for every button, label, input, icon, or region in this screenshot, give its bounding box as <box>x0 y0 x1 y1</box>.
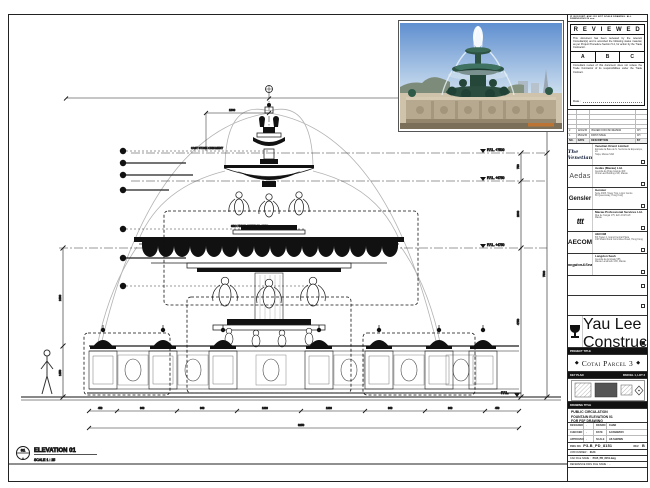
stamp-option-c[interactable]: C <box>620 52 644 62</box>
cad-file-label: CAD FILE NAME : <box>570 457 591 460</box>
stamp-date-label: Date : <box>573 99 581 103</box>
reference-label: REFERENCE DWG FILE NAME : <box>570 463 608 466</box>
rev-no: 2 <box>568 129 577 133</box>
scale-figure <box>41 350 53 394</box>
key-plan-label: KEY PLAN <box>570 374 584 377</box>
drawn-value: CHAD <box>607 423 647 429</box>
review-checkbox[interactable] <box>641 270 646 275</box>
yau-lee-logo <box>568 324 582 340</box>
rev-header-no: NO. <box>568 139 577 143</box>
dim-2000: 2000 <box>516 210 520 217</box>
key-plan-parcel: PARCEL 1, LOT 3 <box>623 374 645 377</box>
scale-label: SCALE <box>594 436 607 442</box>
stamp-body-1: This document has been reviewed by the r… <box>571 35 644 51</box>
reference-value: - <box>610 463 611 466</box>
rev-header-date: DATE <box>577 139 590 143</box>
dim-left-lower: 1450 <box>58 369 62 376</box>
title-block-spacer <box>568 468 647 481</box>
consultant-address: China Law Building 21/F, Macau <box>595 173 645 176</box>
dim-b4: 1030 <box>326 406 332 410</box>
rev-header-desc: DESCRIPTION <box>590 139 636 143</box>
sheet-top-note: IF IN DOUBT, ASK. DO NOT SCALE DRAWING. … <box>568 15 647 22</box>
project-title-header: PROJECT TITLE <box>568 348 647 355</box>
rev-desc: FIRST ISSUE <box>590 134 636 138</box>
consultant-entry-mps: ttt Macau Professional Services Ltd. Rua… <box>568 210 647 232</box>
approved-value: - <box>584 436 594 442</box>
review-checkbox[interactable] <box>641 160 646 165</box>
project-name: Cotai Parcel 3 <box>582 359 634 368</box>
job-value: 3123 <box>590 451 596 454</box>
stamp-date-field[interactable] <box>583 98 642 103</box>
stamp-option-a[interactable]: A <box>571 52 596 62</box>
gensler-logo: Gensler <box>568 188 593 209</box>
fountain-photo-art <box>400 22 562 130</box>
dim-top: 1800 <box>229 108 236 112</box>
contractor-name: Yau Lee Construction <box>583 316 647 348</box>
stamp-body-2: Consultant review of this document does … <box>571 63 644 76</box>
consultant-entry-aedas: Aedas Aedas (Macau) Ltd. Avenida da Prai… <box>568 166 647 188</box>
designed-label: DESIGNED <box>568 423 584 429</box>
statue-left <box>408 89 416 97</box>
level-markers <box>480 149 520 397</box>
pool-wall <box>87 325 521 393</box>
key-plan-art <box>571 380 645 401</box>
dim-b5: 960 <box>388 406 393 410</box>
rev-date: 05/01/15 <box>577 134 590 138</box>
grand-basin <box>134 237 404 272</box>
scale-value: AS SHOWN <box>607 436 647 442</box>
dim-b0: 450 <box>98 406 103 410</box>
statue-right <box>545 87 553 95</box>
stamp-status-options: A B C <box>571 51 644 63</box>
revision-header-row: NO. DATE DESCRIPTION BY <box>568 139 647 143</box>
rev-by: CH <box>636 129 647 133</box>
job-label: JOB NUMBER : <box>570 451 588 454</box>
aedas-logo: Aedas <box>568 166 593 187</box>
rev-label: REV. <box>633 445 639 448</box>
consultant-entry-aecom: AECOM AECOM 8/F Tower 2, Grand Central P… <box>568 232 647 254</box>
consultant-entry-venetian: The Venetian Venetian Orient Limited Est… <box>568 144 647 166</box>
review-checkbox[interactable] <box>641 226 646 231</box>
checked-label: CHECKED <box>568 430 584 436</box>
key-plan-header: KEY PLAN PARCEL 1, LOT 3 <box>568 372 647 379</box>
drawing-title-text: PUBLIC CIRCULATION FOUNTAIN ELEVATION 01… <box>568 409 647 423</box>
dim-b1: 960 <box>140 406 145 410</box>
designed-value: - <box>584 423 594 429</box>
date-value: 12/JAN/2015 <box>607 430 647 436</box>
drawing-info-table: DESIGNED - DRAWN CHAD CHECKED - DATE 12/… <box>568 423 647 443</box>
rev-by: CH <box>636 134 647 138</box>
review-checkbox-checked[interactable] <box>641 341 646 346</box>
consultant-address: Taipa, Macau SAR <box>595 154 645 157</box>
consultant-entry-gensler: Gensler Gensler Suite 4305, Tower Two, L… <box>568 188 647 210</box>
consultant-address: 89 Queensway, Hong Kong <box>595 195 645 198</box>
review-checkbox[interactable] <box>641 248 646 253</box>
review-stamp: R E V I E W E D This document has been r… <box>568 22 647 110</box>
rev-header-by: BY <box>636 139 647 143</box>
sheet-frame: F.F.L. +7500 F.F.L. +6750 F.F.L. +4750 F… <box>8 14 648 482</box>
venetian-logo: The Venetian <box>568 144 593 165</box>
review-checkbox[interactable] <box>641 284 646 289</box>
finial <box>253 103 285 164</box>
dwg-no-label: DWG NO. <box>570 445 581 448</box>
dim-7500: 7500 <box>542 270 546 277</box>
consultant-entry-blank <box>568 276 647 296</box>
project-name-row: ◆ Cotai Parcel 3 ◆ <box>568 355 647 372</box>
level-lines <box>21 153 561 400</box>
stamp-title: R E V I E W E D <box>571 25 644 35</box>
level-label-6750: F.F.L. +6750 <box>487 176 505 180</box>
date-label: DATE <box>594 430 607 436</box>
title-block: IF IN DOUBT, ASK. DO NOT SCALE DRAWING. … <box>567 15 647 481</box>
rev-desc: ISSUED FOR FSF REVIEW <box>590 129 636 133</box>
keynote-text-1: CAST STONE ORNAMENT <box>191 146 223 150</box>
checked-value: - <box>584 430 594 436</box>
rev-no: 1 <box>568 134 577 138</box>
level-label-7500: F.F.L. +7500 <box>487 148 505 152</box>
dim-750: 750 <box>516 164 520 169</box>
rev-date: 12/01/15 <box>577 129 590 133</box>
dim-left-upper: 2480 <box>58 294 62 301</box>
drawing-title-header: DRAWING TITLE <box>568 402 647 409</box>
drawing-title-label: DRAWING TITLE <box>570 404 591 407</box>
revision-table: 2 12/01/15 ISSUED FOR FSF REVIEW CH 1 05… <box>568 110 647 144</box>
drawn-label: DRAWN <box>594 423 607 429</box>
consultant-address: 138 Shatin Rural Committee Road, Hong Ko… <box>595 239 645 242</box>
review-checkbox[interactable] <box>641 182 646 187</box>
level-label-4750: F.F.L. +4750 <box>487 243 505 247</box>
project-title-label: PROJECT TITLE <box>570 350 591 353</box>
dim-b2: 960 <box>200 406 205 410</box>
elevation-tag: 01 - ELEVATION 01 SCALE 1 : 25 <box>17 447 98 463</box>
reference-photo <box>398 20 564 132</box>
dwg-number-row: DWG NO. P3-B_PD_8151 REV. B <box>568 443 647 450</box>
key-plan-drawing <box>568 379 647 402</box>
dim-b3: 1030 <box>262 406 268 410</box>
review-checkbox[interactable] <box>641 204 646 209</box>
cad-file-value: P3-B_PD_8151.dwg <box>593 457 616 460</box>
upper-basin <box>224 165 314 187</box>
aecom-logo: AECOM <box>568 232 593 253</box>
right-dimension-lines <box>519 98 550 400</box>
drawing-sheet-page: F.F.L. +7500 F.F.L. +6750 F.F.L. +4750 F… <box>0 0 650 488</box>
contractor-entry-yaulee: Yau Lee Construction (Macau) CO., LTD. A… <box>568 316 647 348</box>
ornament-icon: ◆ <box>575 361 579 366</box>
review-checkbox[interactable] <box>641 304 646 309</box>
consultant-address: Macau <box>595 217 645 220</box>
elevation-scale: SCALE 1 : 25 <box>34 458 55 462</box>
dim-4750: 4750 <box>516 318 520 325</box>
dim-overall: 8250 <box>298 423 305 427</box>
langdon-seah-logo: Langdon&Seah <box>568 254 593 275</box>
triton-figures <box>213 273 326 325</box>
mps-logo: ttt <box>568 210 593 231</box>
consultant-address: Macau Landmark 13/F, Macau <box>595 261 645 264</box>
rev-value: B <box>642 444 645 448</box>
dim-b7: 450 <box>495 406 500 410</box>
elevation-title: ELEVATION 01 <box>34 448 76 454</box>
approved-label: APPROVED <box>568 436 584 442</box>
dim-b6: 960 <box>448 406 453 410</box>
photo-watermark <box>528 123 554 127</box>
dwg-no-value: P3-B_PD_8151 <box>583 444 612 448</box>
consultant-entry-langdon: Langdon&Seah Langdon Seah Avenida da Ami… <box>568 254 647 276</box>
ornament-icon: ◆ <box>636 361 640 366</box>
stamp-option-b[interactable]: B <box>596 52 621 62</box>
consultant-entry-blank <box>568 296 647 316</box>
elevation-tag-number: 01 <box>21 448 26 453</box>
